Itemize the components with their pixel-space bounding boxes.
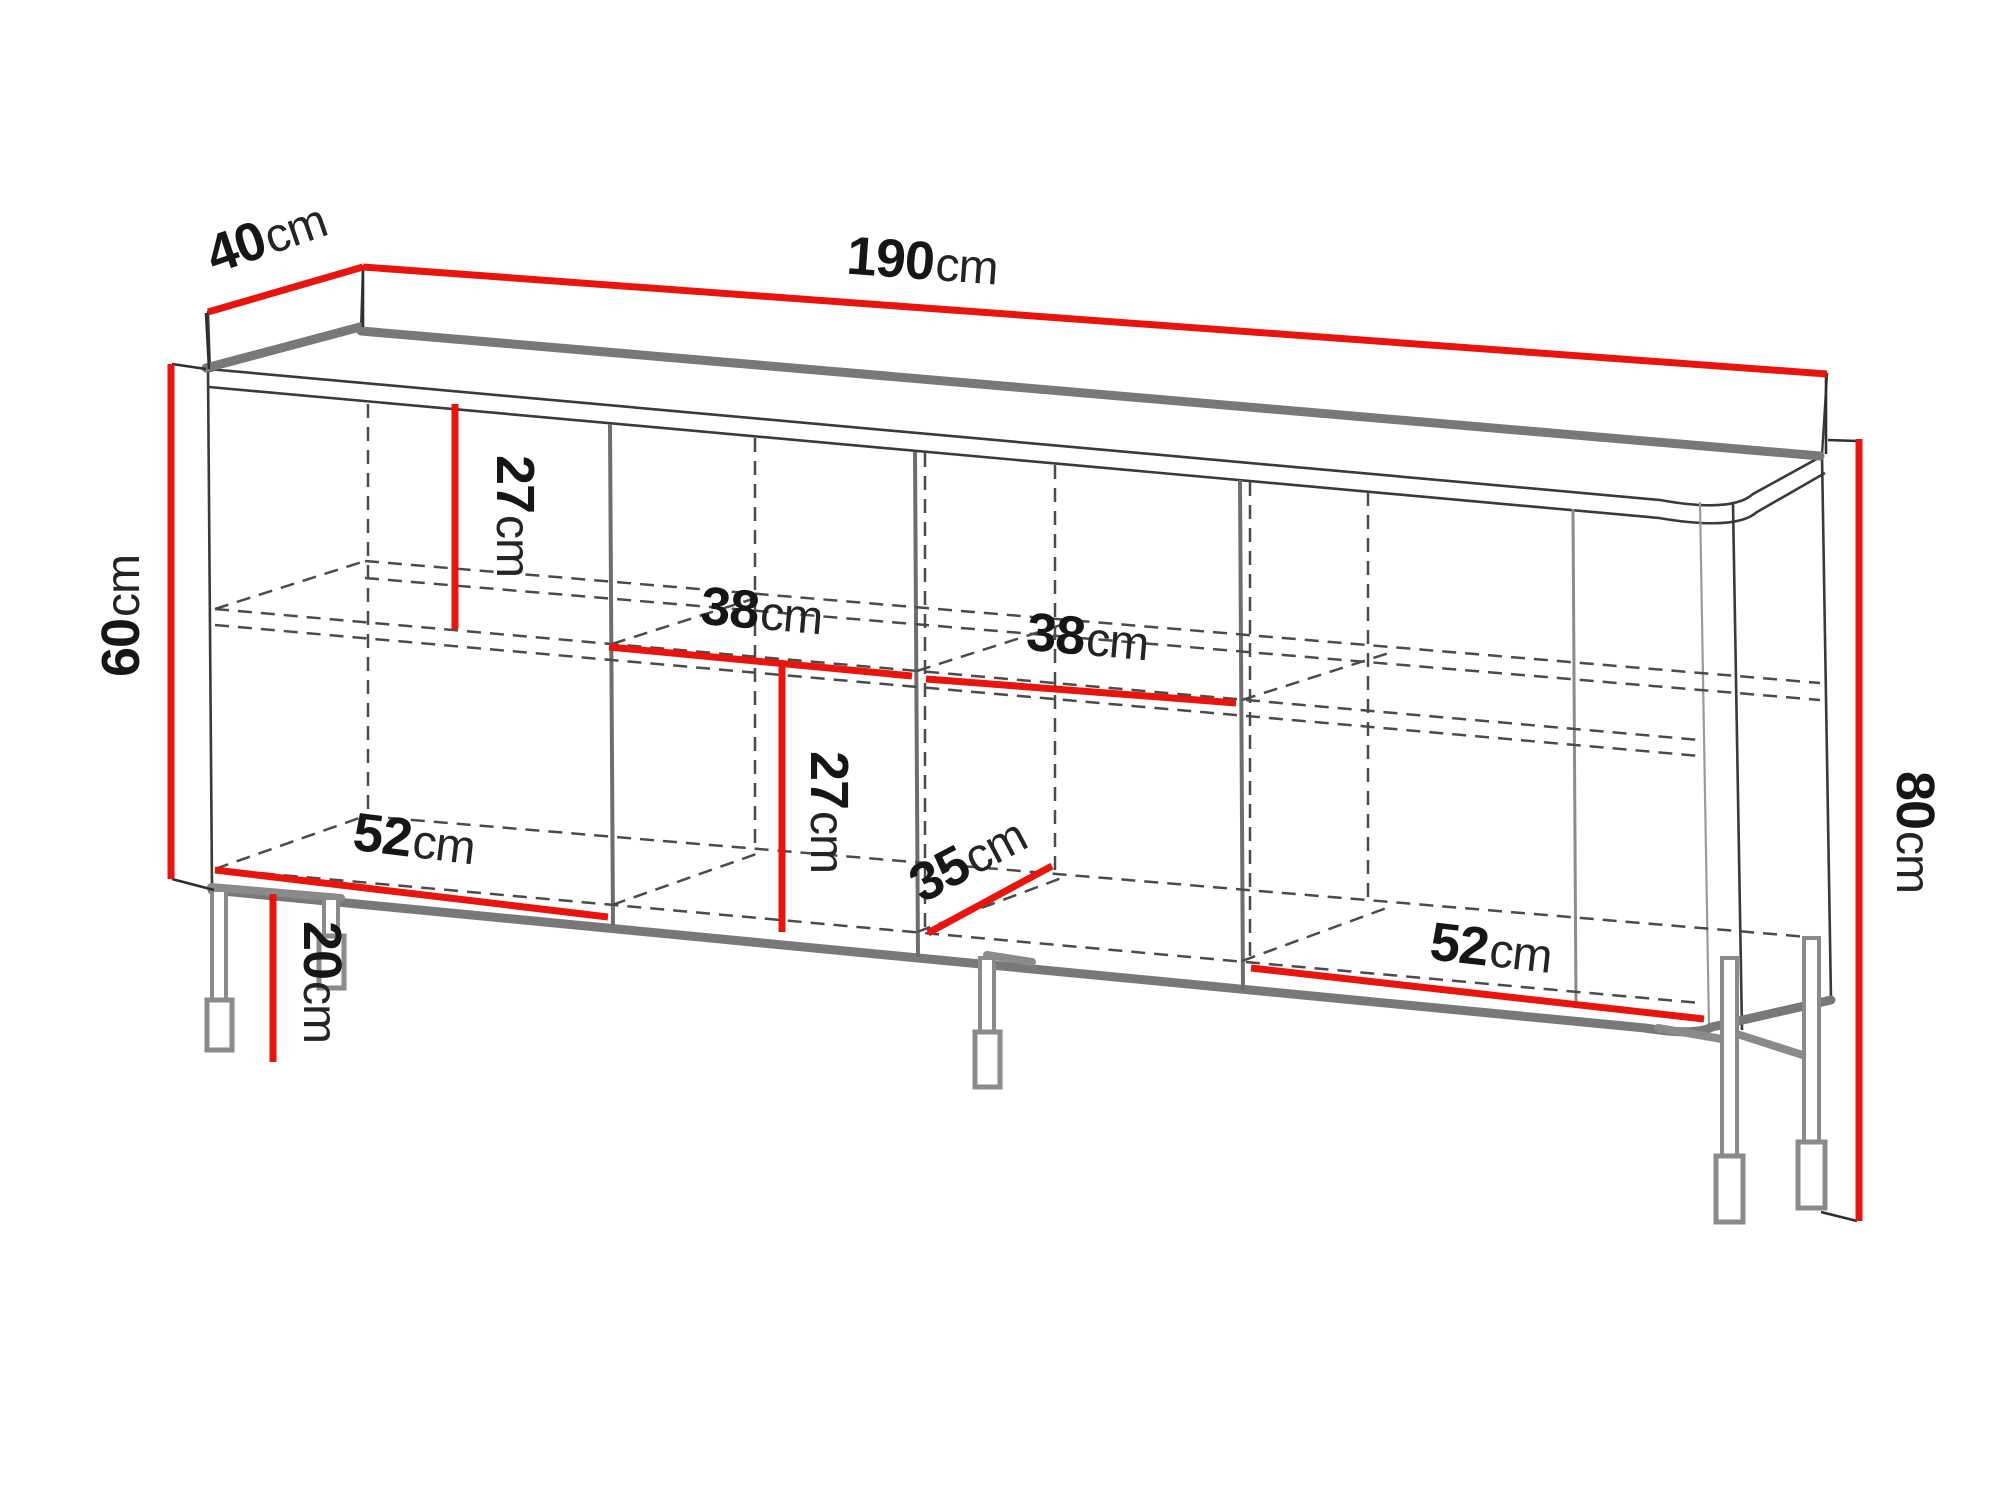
dim-label-38cm-left: 38cm xyxy=(698,576,825,646)
front-right-inner-edge xyxy=(1700,502,1709,1028)
legs xyxy=(207,887,1825,1222)
right-leg-bar-rear xyxy=(1737,1034,1812,1058)
tick-80-top xyxy=(1828,440,1857,441)
cabinet-body xyxy=(206,267,1831,1032)
dim-label-38cm-right: 38cm xyxy=(1024,602,1151,672)
left-front-leg-post xyxy=(212,890,226,1002)
furniture-dimension-diagram: 40cm 190cm 60cm 27cm 38cm 38cm 27cm 52cm… xyxy=(0,0,2000,1500)
dim-label-190cm: 190cm xyxy=(845,226,1000,297)
dim-label-52cm-left: 52cm xyxy=(350,802,478,876)
shelf-front-edge-dashed xyxy=(215,609,1700,740)
divider-1 xyxy=(610,424,613,926)
middle-leg-foot xyxy=(975,1032,1000,1087)
right-rear-leg-post xyxy=(1804,938,1819,1144)
divider-3 xyxy=(1240,480,1243,990)
right-rear-leg-foot xyxy=(1798,1142,1825,1208)
bottom-rear-dashed xyxy=(365,816,1820,938)
dim-label-60cm: 60cm xyxy=(91,555,151,677)
tick-60-top xyxy=(172,364,206,369)
dim-label-52cm-right: 52cm xyxy=(1427,911,1555,984)
dim-label-40cm: 40cm xyxy=(199,189,334,285)
middle-leg-post xyxy=(980,958,994,1034)
tick-60-bottom xyxy=(172,879,214,890)
door-gap-line xyxy=(1573,509,1576,1005)
front-left-edge xyxy=(208,369,212,889)
dim-line-38cm-left xyxy=(609,647,912,676)
bottom-side-dashed-4 xyxy=(1242,906,1392,961)
left-front-leg-foot xyxy=(207,1000,232,1050)
front-right-edge xyxy=(1733,504,1742,1030)
right-front-leg-foot xyxy=(1716,1156,1743,1222)
dim-label-27cm-upper: 27cm xyxy=(485,455,545,577)
dim-label-35cm: 35cm xyxy=(900,804,1036,914)
shelf-side-dashed-1 xyxy=(215,561,365,609)
shelf-side-dashed-4 xyxy=(1242,652,1392,700)
dim-label-80cm: 80cm xyxy=(1885,771,1945,893)
diagram-stage: 40cm 190cm 60cm 27cm 38cm 38cm 27cm 52cm… xyxy=(0,0,2000,1500)
shelf-front-thickness-dashed xyxy=(215,625,1700,756)
dim-label-27cm-lower: 27cm xyxy=(799,751,859,873)
right-front-leg-post xyxy=(1722,958,1737,1158)
bottom-side-dashed-2 xyxy=(612,852,762,905)
tick-80-bottom xyxy=(1821,1212,1857,1221)
dim-label-20cm: 20cm xyxy=(292,921,352,1043)
right-side-rear-edge xyxy=(1822,455,1831,1000)
bottom-side-dashed-1 xyxy=(215,816,365,869)
